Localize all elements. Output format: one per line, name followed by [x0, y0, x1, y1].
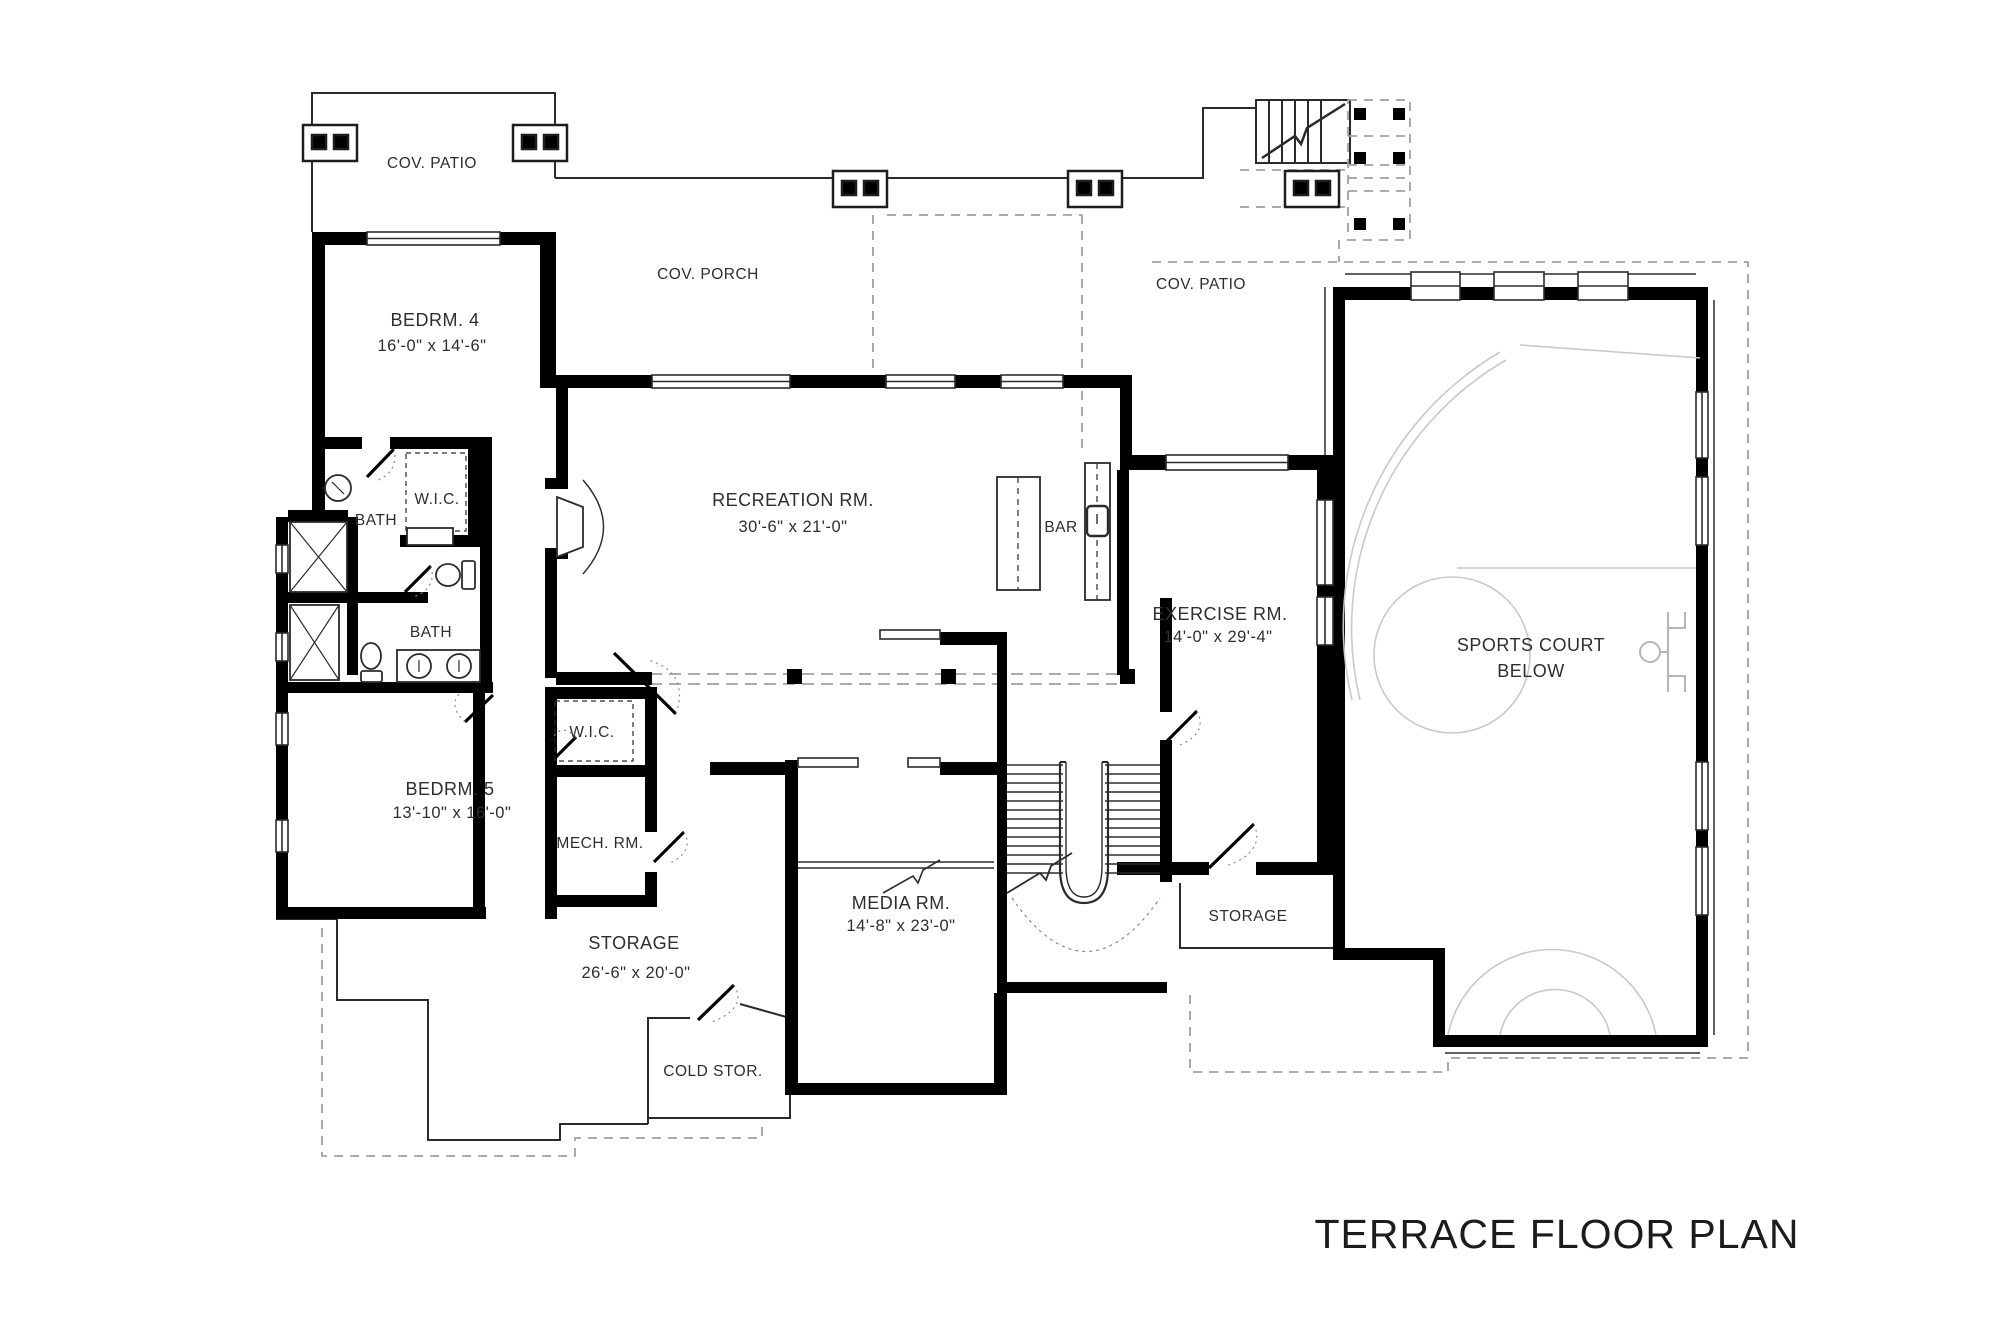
- room-dims-storage-main: 26'-6" x 20'-0": [582, 964, 691, 982]
- room-label-cov-patio-left: COV. PATIO: [387, 155, 477, 172]
- shower-fixture: [290, 605, 339, 680]
- windows-sports-court-top: [1411, 272, 1628, 300]
- sink-fixture: [322, 475, 351, 501]
- column-marker: [513, 125, 567, 161]
- room-label-media: MEDIA RM.: [852, 893, 951, 913]
- window-bedrm4: [367, 232, 500, 245]
- room-label-bedrm4: BEDRM. 4: [390, 310, 479, 330]
- column-marker: [1068, 171, 1122, 207]
- toilet-fixture: [436, 561, 475, 589]
- column-marker: [303, 125, 357, 161]
- room-label-storage-main: STORAGE: [588, 933, 679, 953]
- plan-title: TERRACE FLOOR PLAN: [1314, 1211, 1799, 1257]
- fireplace-fixture: [557, 480, 604, 574]
- room-label-bedrm5: BEDRM. 5: [405, 779, 494, 799]
- room-dims-bedrm4: 16'-0" x 14'-6": [378, 337, 487, 355]
- basketball-court-markings: [1343, 345, 1700, 1035]
- bar-island: [997, 477, 1040, 590]
- walls: [276, 108, 1708, 1095]
- fixtures: [290, 453, 1110, 761]
- floor-plan-drawing: COV. PATIO COV. PORCH COV. PATIO BEDRM. …: [0, 0, 2000, 1333]
- room-label-bar: BAR: [1044, 519, 1077, 536]
- room-label-sports-court-line1: SPORTS COURT: [1457, 635, 1605, 655]
- toilet-fixture: [361, 643, 382, 682]
- room-dims-recreation: 30'-6" x 21'-0": [739, 518, 848, 536]
- column-marker: [833, 171, 887, 207]
- room-label-recreation: RECREATION RM.: [712, 490, 874, 510]
- room-dims-media: 14'-8" x 23'-0": [847, 917, 956, 935]
- room-label-exercise: EXERCISE RM.: [1152, 604, 1287, 624]
- bar-counter: [1085, 463, 1110, 600]
- room-label-sports-court-line2: BELOW: [1497, 661, 1565, 681]
- column-marker: [1285, 171, 1339, 207]
- windows-exercise-right: [1317, 500, 1333, 645]
- dashed-overhead-lines: [322, 100, 1748, 1156]
- cased-openings-media: [798, 630, 940, 767]
- basketball-hoop-icon: [1640, 612, 1685, 692]
- room-label-bath2: BATH: [410, 624, 452, 641]
- room-label-wic1: W.I.C.: [414, 491, 459, 508]
- room-label-storage-stairs: STORAGE: [1208, 908, 1287, 925]
- room-dims-bedrm5: 13'-10" x 16'-0": [393, 804, 512, 822]
- shower-fixture: [290, 522, 347, 592]
- room-label-wic2: W.I.C.: [569, 724, 614, 741]
- floor-plan-sheet: COV. PATIO COV. PORCH COV. PATIO BEDRM. …: [0, 0, 2000, 1333]
- room-label-cold-storage: COLD STOR.: [663, 1063, 762, 1080]
- window-exercise-top: [1166, 455, 1288, 470]
- main-staircase: [883, 762, 1160, 903]
- room-dims-exercise: 14'-0" x 29'-4": [1164, 628, 1273, 646]
- room-label-cov-porch: COV. PORCH: [657, 266, 759, 283]
- room-label-mech: MECH. RM.: [556, 835, 643, 852]
- vanity-double-sink: [397, 650, 480, 682]
- room-label-cov-patio-right: COV. PATIO: [1156, 276, 1246, 293]
- room-label-bath1: BATH: [355, 512, 397, 529]
- wic-shelf-box: [407, 528, 453, 545]
